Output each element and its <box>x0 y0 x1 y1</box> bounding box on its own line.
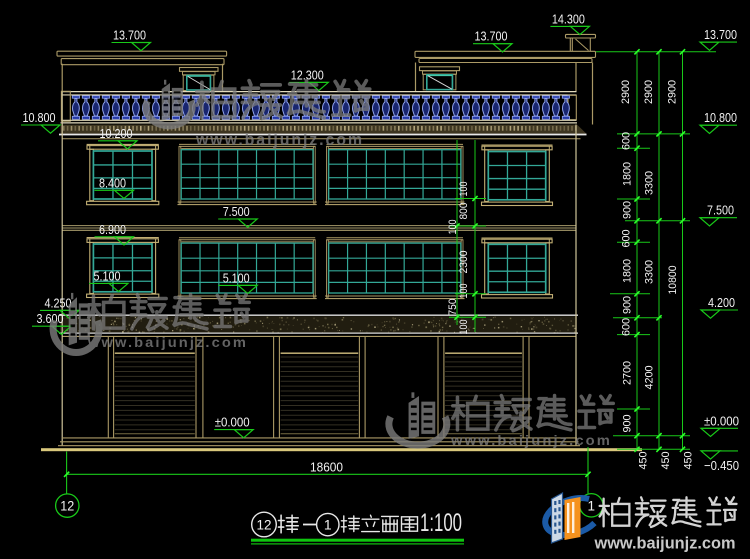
svg-text:12: 12 <box>257 517 272 533</box>
svg-text:±0.000: ±0.000 <box>215 415 250 430</box>
svg-text:6.900: 6.900 <box>99 222 126 237</box>
svg-text:100: 100 <box>458 182 470 197</box>
svg-text:13.700: 13.700 <box>704 27 737 42</box>
svg-text:13.700: 13.700 <box>113 28 146 43</box>
svg-text:5.100: 5.100 <box>223 270 250 285</box>
svg-text:7.500: 7.500 <box>223 204 250 219</box>
svg-text:7.500: 7.500 <box>707 203 734 218</box>
svg-text:www.baijunjz.com: www.baijunjz.com <box>450 432 612 448</box>
svg-text:800: 800 <box>458 203 470 220</box>
svg-text:10.200: 10.200 <box>100 126 133 141</box>
svg-text:450: 450 <box>638 452 650 470</box>
svg-text:450: 450 <box>683 452 695 470</box>
svg-text:2900: 2900 <box>620 80 632 104</box>
svg-text:8.400: 8.400 <box>99 175 126 190</box>
svg-text:750: 750 <box>447 299 459 316</box>
svg-text:10800: 10800 <box>667 266 679 295</box>
svg-text:100: 100 <box>458 320 470 335</box>
svg-text:100: 100 <box>458 284 470 299</box>
svg-text:900: 900 <box>622 415 634 433</box>
svg-text:1800: 1800 <box>622 162 634 186</box>
svg-text:2300: 2300 <box>458 251 470 274</box>
svg-text:450: 450 <box>660 452 672 470</box>
svg-text:3300: 3300 <box>644 260 656 284</box>
svg-text:±0.000: ±0.000 <box>704 413 739 428</box>
svg-text:10.800: 10.800 <box>704 110 737 125</box>
svg-text:2700: 2700 <box>622 361 634 385</box>
svg-text:1:100: 1:100 <box>420 509 462 537</box>
svg-text:13.700: 13.700 <box>475 29 508 44</box>
svg-text:1800: 1800 <box>622 259 634 283</box>
svg-text:4.200: 4.200 <box>708 295 735 310</box>
svg-text:www.baijunjz.com: www.baijunjz.com <box>87 334 248 350</box>
svg-text:12: 12 <box>60 499 74 514</box>
svg-text:10.800: 10.800 <box>23 110 56 125</box>
svg-text:5.100: 5.100 <box>94 268 121 283</box>
svg-text:600: 600 <box>621 230 633 248</box>
svg-text:900: 900 <box>622 201 634 219</box>
svg-text:4200: 4200 <box>644 366 656 390</box>
svg-text:www.baijunjz.com: www.baijunjz.com <box>594 535 736 553</box>
svg-text:600: 600 <box>621 132 633 150</box>
svg-text:18600: 18600 <box>310 460 343 475</box>
svg-text:3300: 3300 <box>644 171 656 195</box>
svg-text:www.baijunjz.com: www.baijunjz.com <box>195 130 364 149</box>
svg-text:1: 1 <box>324 517 332 533</box>
svg-text:2900: 2900 <box>643 80 655 104</box>
svg-text:600: 600 <box>621 318 633 336</box>
svg-text:−0.450: −0.450 <box>704 458 739 473</box>
svg-text:1: 1 <box>588 498 596 513</box>
svg-text:100: 100 <box>447 220 459 235</box>
svg-text:2900: 2900 <box>666 80 678 104</box>
svg-text:900: 900 <box>622 296 634 314</box>
svg-text:4.250: 4.250 <box>45 295 72 310</box>
svg-text:14.300: 14.300 <box>552 11 585 26</box>
